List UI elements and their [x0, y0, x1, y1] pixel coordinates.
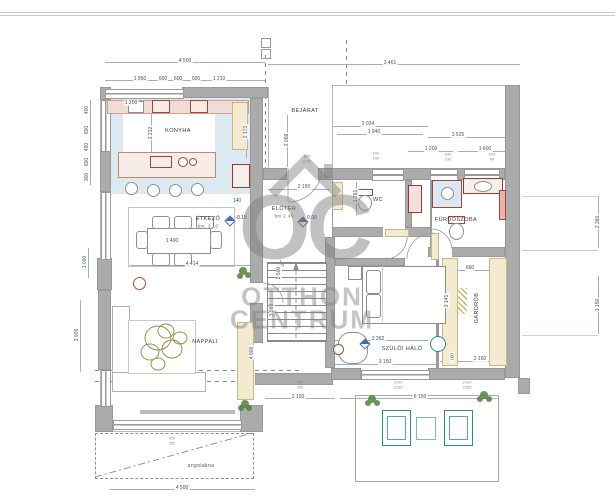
level-marker-label: 0.00	[307, 215, 317, 221]
door-arc	[385, 237, 407, 259]
dim-label: 450	[84, 142, 90, 152]
dim-label: 600	[84, 157, 90, 167]
opening-spec: 900 150	[445, 152, 452, 161]
dim-label: 2 360	[595, 215, 601, 230]
room-label-wc: WC	[373, 197, 383, 203]
dim-label: 3 150	[595, 298, 601, 313]
dim-label: 3 150	[378, 359, 393, 365]
door-arc	[432, 229, 452, 249]
dim-label: 2 059	[284, 133, 290, 148]
room-label-living: NAPPALI	[192, 339, 218, 345]
dim-label: 3 141	[444, 294, 450, 309]
opening-spec: 2100 2160	[394, 380, 403, 389]
dim-label: 4 500	[175, 485, 190, 491]
opening-spec: 900 90	[489, 152, 496, 161]
room-height-dining: bm. 3.10	[198, 224, 219, 229]
opening-spec: 400 250	[169, 436, 176, 445]
dim-label: 4 414	[185, 261, 200, 267]
room-label-kitchen: KONYHA	[165, 128, 191, 134]
dim-label: 1 940	[367, 129, 382, 135]
dim-label: 3 461	[383, 60, 398, 66]
drawing-overlay	[0, 0, 615, 500]
level-marker-label: -0.15	[235, 215, 246, 221]
door-arc	[407, 233, 433, 259]
dim-label: 3 525	[451, 132, 466, 138]
dim-label: 2 160	[473, 356, 488, 362]
dim-label: 660	[465, 265, 475, 271]
dim-label: 2 150	[297, 184, 312, 190]
opening-spec: 240 250	[297, 380, 304, 389]
dim-label: 1 950	[133, 76, 148, 82]
door-arc	[263, 283, 283, 303]
dim-label: 140	[232, 198, 242, 204]
dim-label: 500	[191, 76, 201, 82]
dim-label: 2 024	[361, 121, 376, 127]
room-label-hall: ELŐTÉR	[272, 206, 296, 212]
floor-plan: KONYHA BEJÁRAT ELŐTÉR bm 2.45 ÉTKEZŐ bm.…	[0, 0, 615, 500]
room-height-hall: bm 2.45	[274, 214, 293, 219]
dim-label: 2 500	[276, 266, 282, 281]
dim-label: 1 200	[424, 146, 439, 152]
dim-label: 6 150	[413, 394, 428, 400]
dim-label: 160	[450, 352, 455, 362]
dim-label: 1 210	[212, 76, 227, 82]
dim-label: 1 000	[82, 255, 88, 270]
room-label-master-bedroom: SZÜLŐI HÁLÓ	[382, 346, 423, 352]
stairs-arrowhead	[293, 262, 299, 271]
dim-label: 600	[173, 76, 183, 82]
dim-label: 1 791	[353, 189, 359, 204]
opening-spec: 100 240	[373, 151, 380, 160]
dim-label: 3 905	[74, 328, 80, 343]
dim-label: 1 200	[124, 100, 139, 106]
dim-label: 2 173	[243, 125, 249, 140]
dim-label: 400	[84, 105, 90, 115]
plant-icon	[141, 324, 187, 370]
dim-label: 3 262	[371, 336, 386, 342]
opening-spec: 975 2150	[303, 154, 312, 163]
room-label-entrance: BEJÁRAT	[291, 108, 318, 114]
dim-label: 2 150	[291, 394, 306, 400]
dim-label: 4 000	[249, 346, 255, 361]
room-label-lightwell: angolakna	[188, 463, 215, 469]
room-label-dining: ÉTKEZŐ	[196, 216, 220, 222]
dim-label: 300	[84, 172, 90, 182]
dim-label: 3 980	[269, 303, 275, 318]
room-label-wardrobe: GARDRÓB	[474, 293, 480, 324]
dim-label: 1 400	[165, 238, 180, 244]
dim-label: 600	[84, 125, 90, 135]
dim-label: 2 212	[148, 126, 154, 141]
dim-label: 600	[158, 76, 168, 82]
opening-spec: 2410 2160	[463, 380, 472, 389]
dim-label: 4 500	[178, 58, 193, 64]
room-label-bathroom: FÜRDŐSZOBA	[435, 217, 477, 223]
